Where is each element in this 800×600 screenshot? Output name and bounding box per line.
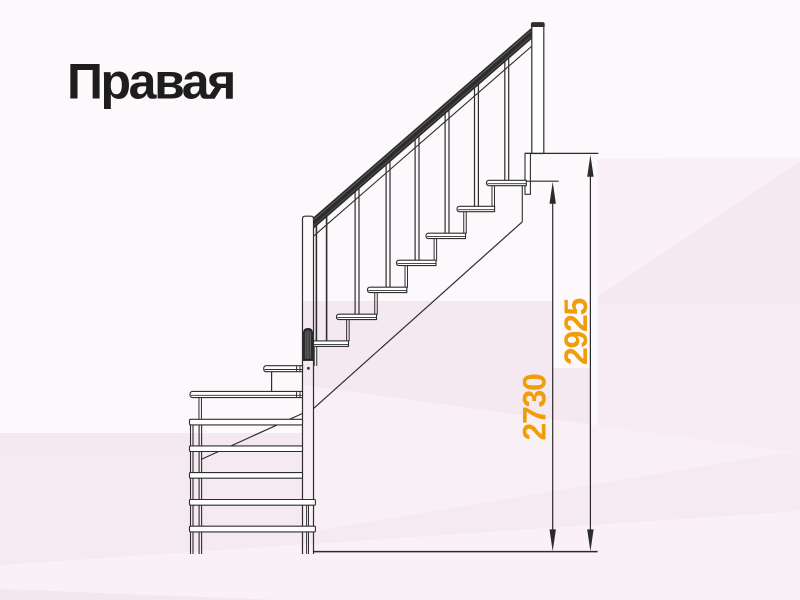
svg-text:2730: 2730 [516, 374, 552, 440]
svg-text:2925: 2925 [558, 299, 594, 365]
svg-text:Правая: Правая [67, 54, 234, 110]
